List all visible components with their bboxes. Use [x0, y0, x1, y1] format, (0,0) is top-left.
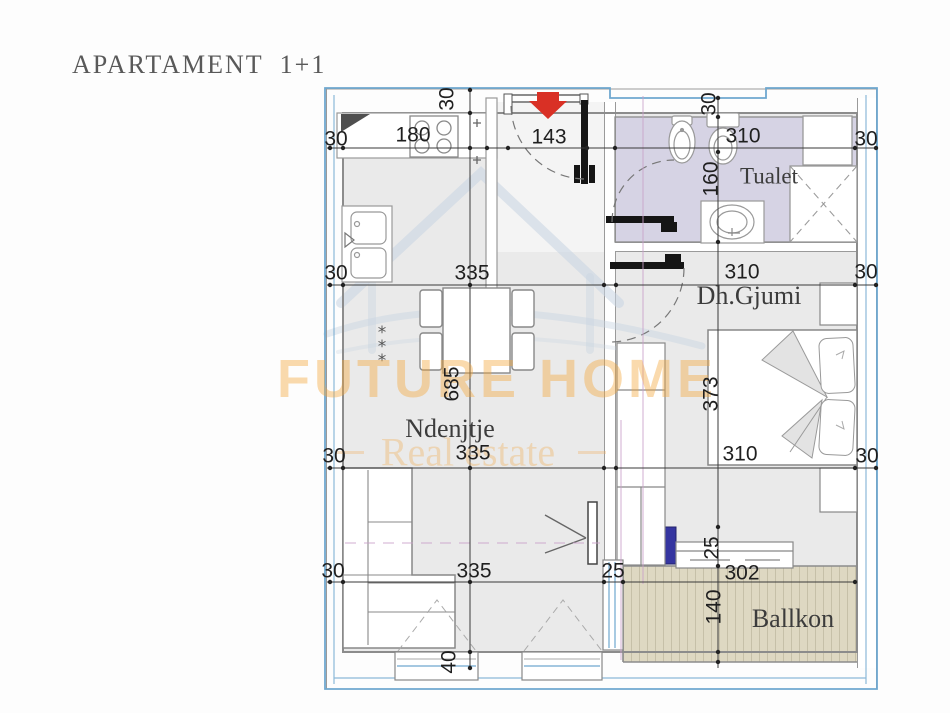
- dim-label: 30: [323, 263, 348, 284]
- dim-label: 302: [723, 563, 760, 584]
- dim-label: 25: [600, 561, 625, 582]
- dim-label: 310: [724, 126, 761, 147]
- dim-label: 335: [454, 443, 491, 464]
- dim-label: 30: [854, 446, 879, 467]
- room-label-dhgjumi: Dh.Gjumi: [697, 283, 802, 309]
- dim-label: 373: [701, 375, 722, 412]
- entrance-arrow-icon: [529, 92, 567, 119]
- dim-label: 180: [394, 125, 431, 146]
- dim-label: 685: [442, 365, 463, 402]
- page-title: APARTAMENT 1+1: [72, 50, 326, 80]
- watermark-brand: FUTURE HOME: [277, 348, 717, 410]
- room-label-tualet: Tualet: [740, 165, 798, 188]
- bathroom-door-icon: [606, 160, 677, 232]
- dim-label: 335: [455, 561, 492, 582]
- dim-label: 140: [704, 588, 725, 625]
- floorplan-canvas: ***: [0, 0, 950, 713]
- kitchen-sink-icon: [342, 206, 392, 282]
- room-label-ballkon: Ballkon: [752, 606, 834, 632]
- sofa-icon: [343, 468, 455, 648]
- dim-label: 30: [323, 129, 348, 150]
- dim-label: 30: [437, 86, 458, 111]
- dim-label: 335: [453, 263, 490, 284]
- dim-label: 30: [320, 561, 345, 582]
- dim-label: 40: [439, 649, 460, 674]
- dim-label: 30: [321, 446, 346, 467]
- dim-label: 310: [723, 262, 760, 283]
- bidet-icon: [669, 116, 695, 163]
- washing-machine-icon: [701, 201, 764, 243]
- tv-icon: [545, 502, 597, 564]
- watermark-dash-right: [578, 451, 606, 454]
- dim-label: 160: [701, 160, 722, 197]
- dim-label: 25: [702, 535, 723, 560]
- shower-unit-icon: [790, 116, 857, 242]
- room-label-ndenjtje: Ndenjtje: [405, 416, 495, 442]
- dim-label: 143: [530, 127, 567, 148]
- dim-label: 30: [853, 262, 878, 283]
- dim-label: 30: [699, 91, 720, 116]
- dim-label: 310: [721, 444, 758, 465]
- dim-label: 30: [853, 129, 878, 150]
